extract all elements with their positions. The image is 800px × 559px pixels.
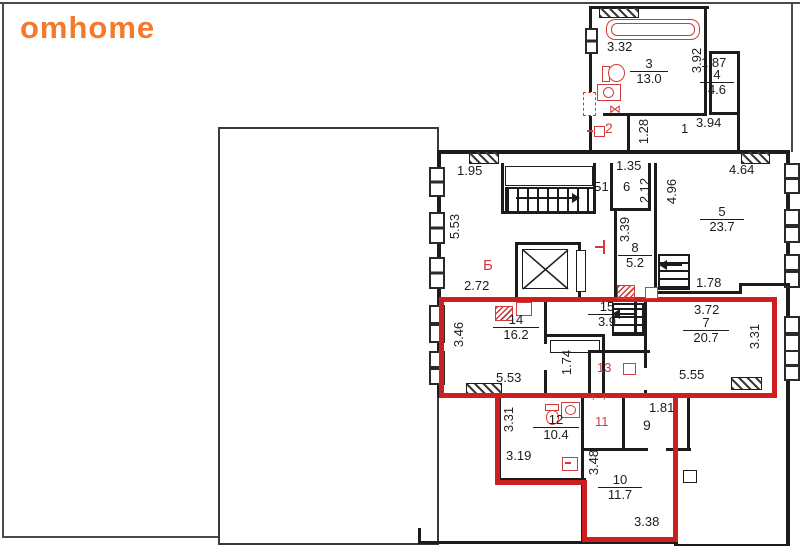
panel-icon xyxy=(562,457,578,471)
room-13-label: 13 xyxy=(597,361,611,374)
room-10-label: 1011.7 xyxy=(598,473,642,502)
window-symbol xyxy=(784,163,800,194)
dimension-label: 2.72 xyxy=(464,279,489,292)
elevator-x-icon xyxy=(522,249,569,290)
dimension-label: 4.96 xyxy=(665,179,678,204)
floor-plan-drawing: omhome xyxy=(0,0,800,559)
room-12-label: 1210.4 xyxy=(533,413,579,442)
shaft-hatch xyxy=(599,7,639,18)
omhome-logo: omhome xyxy=(20,10,155,46)
meter-icon xyxy=(594,126,605,137)
door-mark: + xyxy=(590,393,596,404)
dimension-label: 3.94 xyxy=(696,116,721,129)
page-border-top xyxy=(0,2,800,4)
stair-upper-label: Б1 xyxy=(593,180,609,193)
window-symbol xyxy=(429,212,445,244)
wall-segment xyxy=(546,334,605,337)
room-6-label: 6 xyxy=(623,180,630,193)
door-cross-icon: ⋈ xyxy=(609,103,621,115)
room-9-label: 9 xyxy=(643,418,651,432)
room-2-label: 2 xyxy=(605,121,613,135)
door-mark: + xyxy=(601,393,607,404)
wall-segment xyxy=(588,350,591,396)
dimension-label: 3.19 xyxy=(506,449,531,462)
door-opening xyxy=(648,448,666,451)
room-14-label: 1416.2 xyxy=(493,313,539,342)
dimension-label: 1.81 xyxy=(649,401,674,414)
dimension-label: 1.74 xyxy=(560,350,573,375)
apartment-outline xyxy=(582,480,587,542)
window-symbol xyxy=(585,28,598,54)
dimension-label: 5.55 xyxy=(679,368,704,381)
page-border-left xyxy=(2,2,4,538)
window-symbol xyxy=(429,257,445,289)
dimension-label: 4.64 xyxy=(729,163,754,176)
dimension-label: 2.12 xyxy=(638,178,651,203)
page-border-bottom-left xyxy=(2,536,218,538)
section-mark-icon xyxy=(603,240,605,254)
room-11-label: 11 xyxy=(595,415,609,428)
dimension-label: 3.32 xyxy=(607,40,632,53)
stair-flight xyxy=(505,187,595,214)
room-7-label: 720.7 xyxy=(683,316,729,345)
dimension-label: 5.53 xyxy=(496,371,521,384)
room-1-label: 1 xyxy=(681,122,688,135)
wall-segment xyxy=(739,283,790,286)
window-symbol xyxy=(784,350,800,381)
bathtub-icon xyxy=(611,23,695,36)
wall-segment xyxy=(627,116,630,152)
wall-segment xyxy=(654,163,657,294)
window-symbol xyxy=(784,209,800,243)
wall-segment xyxy=(654,291,742,294)
wall-segment xyxy=(737,51,740,152)
room-15-label: 153.9 xyxy=(588,300,626,329)
appliance-icon xyxy=(645,287,658,299)
dimension-label: 3.38 xyxy=(634,515,659,528)
wall-segment xyxy=(687,398,690,451)
stair-arrow xyxy=(516,197,574,199)
left-wing-outline xyxy=(218,127,439,545)
room-3-label: 313.0 xyxy=(630,57,668,86)
panel-tick xyxy=(565,462,571,464)
apartment-outline xyxy=(673,393,678,542)
wall-segment xyxy=(644,298,647,368)
apartment-outline xyxy=(582,537,678,542)
wall-segment xyxy=(622,398,625,451)
stair-arrow-head xyxy=(659,260,667,270)
apartment-outline xyxy=(495,393,500,485)
apartment-outline xyxy=(495,480,587,485)
room-5-label: 523.7 xyxy=(700,205,744,234)
wall-segment xyxy=(610,163,613,211)
dimension-label: 5.53 xyxy=(448,214,461,239)
stair-arrow-head xyxy=(572,193,580,203)
toilet-icon xyxy=(608,64,625,82)
apartment-outline-bottom xyxy=(439,393,777,398)
wall-segment xyxy=(674,544,790,546)
meter-tick xyxy=(587,130,593,132)
window-symbol xyxy=(784,316,800,352)
door-leaf xyxy=(683,470,697,483)
stair-hall-label: Б xyxy=(483,258,493,273)
apartment-outline-left xyxy=(439,297,444,398)
apartment-outline-right xyxy=(772,297,777,398)
stair-landing xyxy=(505,166,593,186)
appliance-icon xyxy=(623,363,636,375)
wall-segment xyxy=(501,163,504,213)
wall-segment xyxy=(418,528,421,541)
sink-icon xyxy=(603,87,614,98)
dimension-label: 1.78 xyxy=(696,276,721,289)
dimension-label: 1.95 xyxy=(457,164,482,177)
dimension-label: 1.35 xyxy=(616,159,641,172)
window-symbol xyxy=(429,167,445,197)
wall-segment xyxy=(544,298,547,344)
elevator-counterweight xyxy=(576,250,586,292)
dimension-label: 3.31 xyxy=(748,324,761,349)
room-4-label: 44.6 xyxy=(700,68,734,97)
dimension-label: 1.28 xyxy=(637,119,650,144)
wall-segment xyxy=(588,350,650,353)
shaft-hatch xyxy=(731,377,762,390)
wall-segment xyxy=(709,51,740,54)
stove-icon xyxy=(617,285,635,299)
dimension-label: 3.46 xyxy=(452,322,465,347)
section-mark-icon xyxy=(595,246,603,248)
room-8-label: 85.2 xyxy=(618,241,652,270)
dimension-label: 3.31 xyxy=(502,407,515,432)
page-border-right xyxy=(791,2,793,152)
removed-door-icon xyxy=(583,92,596,116)
dimension-label: 3.39 xyxy=(618,217,631,242)
dimension-label: 3.48 xyxy=(587,450,600,475)
